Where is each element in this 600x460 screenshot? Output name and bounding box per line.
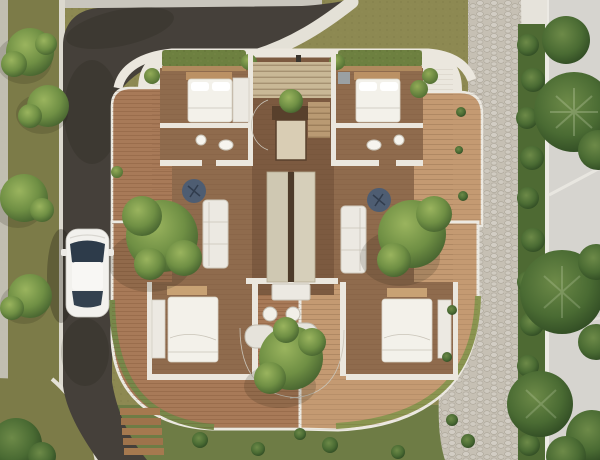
wardrobe-sw [152,300,165,358]
ac-unit-ne [338,72,350,84]
wardrobe-nw [233,78,249,122]
bench-se [387,288,427,297]
wall-right-1 [331,160,379,166]
bed-ne-pillow-1 [359,82,377,91]
deck-edge-left [162,66,246,71]
white-car [47,229,114,323]
island-table [272,284,310,300]
entry-chair [276,120,306,160]
aerial-render [0,0,600,460]
wall-nw-bath [160,123,249,128]
wall-se-east [453,282,458,380]
corridor [267,172,315,282]
corridor-wall-left [267,172,288,282]
wall-ne-bath [335,123,423,128]
round-bush-1 [144,68,160,84]
bath-ne-sink [394,135,404,145]
side-stair-treads [308,102,330,138]
sofa-left [203,200,228,268]
wall-left-1 [160,160,202,166]
indoor-plant [279,89,303,113]
bed-nw-pillow-1 [191,82,209,91]
car-mirror-right [108,249,114,256]
car-rear-window [72,291,103,308]
step-3 [122,428,162,435]
planter-left-texture [162,50,246,67]
step-2 [121,418,161,425]
bath-nw-toilet [219,140,233,150]
car-windshield [70,241,105,266]
bed-nw-pillow-2 [212,82,230,91]
wall-se-room [340,282,346,376]
bed-se [382,299,432,362]
neighbor-wall-top [517,0,547,26]
wall-left-2 [216,160,253,166]
step-4 [123,438,163,445]
terrace-bush-west [111,166,123,178]
wall-right-2 [396,160,423,166]
wall-hall-right [331,50,336,162]
wall-se-south [346,374,454,380]
deck-edge-right [338,66,422,71]
bench-sw [167,286,207,295]
corridor-wall-right [294,172,315,282]
car-mirror-left [61,249,67,256]
car-roof [72,262,103,290]
wall-sw-south [152,374,258,380]
bath-nw-sink [196,135,206,145]
tree-shadow-on-road-3 [61,318,109,386]
corridor-gap [288,172,294,282]
planter-right-texture [338,50,422,67]
step-5 [124,448,164,455]
scene-canvas [0,0,600,460]
bedroom-nw [186,72,249,122]
step-1 [120,408,160,415]
round-bush-5 [410,80,428,98]
wall-sw-west [147,282,152,380]
bed-ne-pillow-2 [380,82,398,91]
round-bush-4 [422,68,438,84]
round-stool-1 [263,307,277,321]
bath-ne-toilet [367,140,381,150]
